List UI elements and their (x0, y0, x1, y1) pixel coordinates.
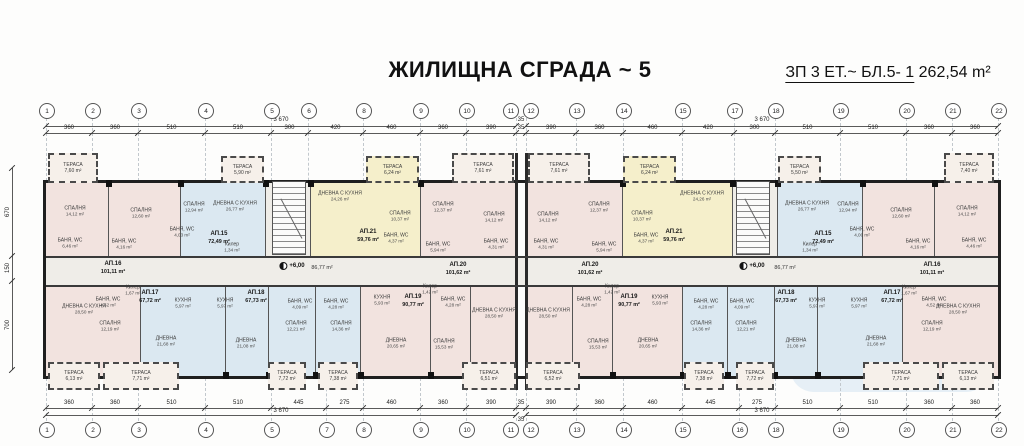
apartment-area: 67,73 m² (245, 297, 267, 304)
terrace: ТЕРАСА7,60 m² (48, 153, 98, 183)
axis-bubble: 9 (413, 422, 429, 438)
room-area: 5,90 m² (234, 170, 251, 176)
dimension-label: 390 (486, 125, 496, 131)
apartment-number: АП.17 (139, 290, 161, 298)
room-area: 6,51 m² (481, 376, 498, 382)
room-name: ТЕРАСА (63, 162, 82, 168)
axis-bubble: 5 (264, 422, 280, 438)
apartment-area: 90,77 m² (618, 301, 640, 308)
dimension-label: 510 (166, 400, 176, 406)
room-name: ТЕРАСА (549, 162, 568, 168)
dimension-label: 35 (518, 417, 525, 423)
dimension-label: 460 (647, 125, 657, 131)
terrace: ТЕРАСА5,50 m² (778, 156, 821, 183)
terrace: ТЕРАСА7,72 m² (268, 362, 306, 390)
terrace: ТЕРАСА6,52 m² (526, 362, 580, 390)
apartment-number: АП.16 (101, 261, 125, 269)
dimension-tick (9, 367, 15, 373)
apartment-area: 101,62 m² (578, 269, 603, 276)
room-name: ТЕРАСА (959, 162, 978, 168)
room-name: ТЕРАСА (958, 370, 977, 376)
expansion-joint-wall (525, 153, 528, 390)
apartment-label: АП.16101,11 m² (101, 261, 125, 275)
axis-bubble: 12 (523, 103, 539, 119)
room-area: 7,61 m² (475, 168, 492, 174)
apartment-area: 90,77 m² (402, 301, 424, 308)
vertical-dimension-label: 150 (5, 263, 11, 273)
room-name: ТЕРАСА (277, 370, 296, 376)
terrace: ТЕРАСА6,51 m² (462, 362, 516, 390)
dimension-label: 360 (64, 125, 74, 131)
apartment-area: 101,11 m² (920, 269, 944, 276)
room-name: ТЕРАСА (383, 164, 402, 170)
apartment-label: АП.1767,72 m² (139, 290, 161, 304)
wall (732, 183, 733, 256)
dimension-label: 510 (868, 125, 878, 131)
apartment-label: АП.16101,11 m² (920, 262, 944, 276)
terrace: ТЕРАСА5,90 m² (221, 156, 264, 183)
room-name: ТЕРАСА (479, 370, 498, 376)
expansion-joint-wall (515, 153, 518, 390)
axis-bubble: 3 (131, 422, 147, 438)
axis-bubble: 4 (198, 422, 214, 438)
axis-bubble: 22 (991, 103, 1007, 119)
axis-bubble: 16 (732, 422, 748, 438)
room-area: 7,61 m² (551, 168, 568, 174)
dimension-label: 420 (703, 125, 713, 131)
dimension-label: 510 (802, 125, 812, 131)
room-area: 6,24 m² (641, 170, 658, 176)
column (178, 180, 184, 187)
axis-bubble: 15 (675, 422, 691, 438)
room-area: 7,60 m² (65, 168, 82, 174)
wall (180, 183, 181, 256)
apartment-number: АП.17 (881, 290, 903, 298)
dimension-label: 300 (749, 125, 759, 131)
wall (310, 183, 311, 256)
apartment-label: АП.1572,49 m² (812, 231, 834, 245)
room-area: 5,50 m² (791, 170, 808, 176)
column (223, 372, 229, 379)
dimension-label: 360 (438, 400, 448, 406)
apartment-label: АП.2159,76 m² (357, 229, 379, 243)
room-name: ТЕРАСА (640, 164, 659, 170)
dimension-label: 360 (924, 400, 934, 406)
apartment-number: АП.20 (578, 262, 603, 270)
column (815, 372, 821, 379)
apartment-label: АП.1990,77 m² (402, 294, 424, 308)
dimension-label: 510 (868, 400, 878, 406)
terrace: ТЕРАСА7,72 m² (736, 362, 774, 390)
room-area: 7,38 m² (330, 376, 347, 382)
apartment-number: АП.16 (920, 262, 944, 270)
apartment-area: 59,76 m² (663, 236, 685, 243)
stair-direction-line (280, 198, 302, 238)
wall (315, 285, 316, 376)
level-value: +6,00 (289, 263, 304, 269)
wall (430, 285, 431, 376)
dimension-label: 360 (924, 125, 934, 131)
apartment-label: АП.2159,76 m² (663, 229, 685, 243)
axis-bubble: 2 (85, 422, 101, 438)
dimension-label: 360 (438, 125, 448, 131)
terrace: ТЕРАСА7,38 m² (318, 362, 358, 390)
axis-bubble: 6 (301, 103, 317, 119)
axis-bubble: 10 (459, 422, 475, 438)
axis-bubble: 13 (569, 103, 585, 119)
wall (682, 285, 683, 376)
terrace: ТЕРАСА7,61 m² (452, 153, 514, 183)
wall (225, 285, 226, 376)
dimension-label: 35 (518, 400, 525, 406)
staircase (736, 181, 770, 255)
room-name: ТЕРАСА (233, 164, 252, 170)
vertical-dimension-label: 700 (5, 320, 11, 330)
apartment-area: 72,49 m² (812, 238, 834, 245)
dimension-label: 360 (594, 125, 604, 131)
wall (727, 285, 728, 376)
dimension-label: 420 (330, 125, 340, 131)
apartment-area: 101,11 m² (101, 268, 125, 275)
axis-bubble: 21 (945, 103, 961, 119)
apartment-number: АП.21 (663, 229, 685, 237)
axis-bubble: 12 (523, 422, 539, 438)
dimension-label: 35 (518, 117, 525, 123)
vertical-dimension-line (12, 168, 13, 370)
room-area: 6,52 m² (545, 376, 562, 382)
axis-bubble: 21 (945, 422, 961, 438)
dimension-label: 445 (705, 400, 715, 406)
dimension-label: 360 (110, 125, 120, 131)
apartment-number: АП.21 (357, 229, 379, 237)
dimension-total-label: 3 670 (273, 408, 288, 414)
wall (108, 183, 109, 256)
terrace: ТЕРАСА7,38 m² (684, 362, 724, 390)
dimension-label: 460 (647, 400, 657, 406)
floor-plan: ТЕРАСА7,60 m²ТЕРАСА5,90 m²ТЕРАСА6,24 m²Т… (0, 0, 1024, 446)
floor-plan-sheet: ЖИЛИЩНА СГРАДА ~ 5 ЗП 3 ЕТ.~ БЛ.5- 1 262… (0, 0, 1024, 446)
room-name: ТЕРАСА (131, 370, 150, 376)
axis-bubble: 9 (413, 103, 429, 119)
terrace: ТЕРАСА7,71 m² (103, 362, 179, 390)
room-name: ТЕРАСА (543, 370, 562, 376)
column (358, 372, 364, 379)
room-name: ТЕРАСА (694, 370, 713, 376)
dimension-label: 460 (386, 400, 396, 406)
room-area: 7,72 m² (747, 376, 764, 382)
axis-bubble: 20 (899, 103, 915, 119)
terrace: ТЕРАСА6,13 m² (942, 362, 994, 390)
room-name: ТЕРАСА (745, 370, 764, 376)
room-area: 7,72 m² (279, 376, 296, 382)
level-value: +6,00 (749, 263, 764, 269)
apartment-number: АП.19 (402, 294, 424, 302)
wall (46, 285, 998, 287)
room-name: ТЕРАСА (790, 164, 809, 170)
apartment-label: АП.1867,73 m² (775, 290, 797, 304)
axis-bubble: 11 (503, 422, 519, 438)
room-area: 6,13 m² (960, 376, 977, 382)
building-outline (43, 180, 1001, 379)
vertical-dimension-label: 670 (5, 207, 11, 217)
apartment-label: АП.1767,72 m² (881, 290, 903, 304)
room-area: 6,13 m² (66, 376, 83, 382)
dimension-label: 510 (166, 125, 176, 131)
wall (817, 285, 818, 376)
axis-bubble: 7 (319, 422, 335, 438)
apartment-area: 67,72 m² (881, 297, 903, 304)
column (106, 180, 112, 187)
axis-bubble: 4 (198, 103, 214, 119)
dimension-label: 360 (64, 400, 74, 406)
room-name: ТЕРАСА (891, 370, 910, 376)
apartment-number: АП.15 (812, 231, 834, 239)
dimension-label: 445 (293, 400, 303, 406)
axis-bubble: 13 (569, 422, 585, 438)
dimension-line (46, 408, 998, 409)
wall (934, 183, 935, 256)
terrace: ТЕРАСА7,40 m² (944, 153, 994, 183)
dimension-line (46, 133, 998, 134)
dimension-label: 360 (110, 400, 120, 406)
room-area: 7,38 m² (696, 376, 713, 382)
apartment-label: АП.20101,62 m² (446, 262, 471, 276)
terrace: ТЕРАСА7,71 m² (863, 362, 939, 390)
wall (612, 285, 613, 376)
apartment-label: АП.1867,73 m² (245, 290, 267, 304)
dimension-total-label: 3 670 (754, 117, 769, 123)
staircase (272, 181, 306, 255)
axis-bubble: 19 (833, 103, 849, 119)
axis-bubble: 5 (264, 103, 280, 119)
apartment-number: АП.15 (208, 231, 230, 239)
axis-bubble: 22 (991, 422, 1007, 438)
wall (777, 183, 778, 256)
dimension-label: 300 (284, 125, 294, 131)
dimension-label: 510 (802, 400, 812, 406)
apartment-label: АП.1572,49 m² (208, 231, 230, 245)
dimension-label: 460 (386, 125, 396, 131)
axis-bubble: 17 (727, 103, 743, 119)
wall (360, 285, 361, 376)
column (932, 180, 938, 187)
room-area: 7,40 m² (961, 168, 978, 174)
terrace: ТЕРАСА6,24 m² (366, 156, 419, 183)
axis-bubble: 20 (899, 422, 915, 438)
wall (46, 256, 998, 258)
apartment-label: АП.1990,77 m² (618, 294, 640, 308)
wall (862, 183, 863, 256)
level-mark: +6,00 (739, 262, 764, 270)
axis-bubble: 11 (503, 103, 519, 119)
dimension-total-label: 3 670 (754, 408, 769, 414)
axis-bubble: 10 (459, 103, 475, 119)
dimension-label: 275 (339, 400, 349, 406)
stair-direction-line (744, 198, 766, 238)
dimension-label: 510 (233, 400, 243, 406)
axis-bubble: 19 (833, 422, 849, 438)
dimension-label: 360 (594, 400, 604, 406)
common-area-label: 86,77 m² (311, 265, 332, 271)
axis-bubble: 14 (616, 103, 632, 119)
column (860, 180, 866, 187)
apartment-number: АП.19 (618, 294, 640, 302)
dimension-label: 275 (752, 400, 762, 406)
wall (265, 183, 266, 256)
axis-bubble: 15 (675, 103, 691, 119)
level-mark: +6,00 (279, 262, 304, 270)
dimension-label: 360 (970, 400, 980, 406)
wall (622, 183, 623, 256)
column (725, 372, 731, 379)
room-area: 7,71 m² (133, 376, 150, 382)
dimension-label: 390 (546, 125, 556, 131)
column (428, 372, 434, 379)
dimension-total-line (46, 415, 516, 416)
axis-bubble: 1 (39, 422, 55, 438)
apartment-area: 72,49 m² (208, 238, 230, 245)
axis-bubble: 8 (356, 422, 372, 438)
axis-bubble: 14 (616, 422, 632, 438)
room-area: 7,71 m² (893, 376, 910, 382)
axis-bubble: 3 (131, 103, 147, 119)
dimension-label: 390 (486, 400, 496, 406)
apartment-number: АП.20 (446, 262, 471, 270)
apartment-area: 67,73 m² (775, 297, 797, 304)
apartment-area: 59,76 m² (357, 236, 379, 243)
dimension-label: 390 (546, 400, 556, 406)
apartment-number: АП.18 (775, 290, 797, 298)
room-area: 6,24 m² (384, 170, 401, 176)
terrace: ТЕРАСА6,24 m² (623, 156, 676, 183)
apartment-area: 67,72 m² (139, 297, 161, 304)
column (730, 180, 736, 187)
apartment-label: АП.20101,62 m² (578, 262, 603, 276)
terrace: ТЕРАСА6,13 m² (48, 362, 100, 390)
axis-bubble: 18 (768, 103, 784, 119)
apartment-area: 101,62 m² (446, 269, 471, 276)
axis-bubble: 8 (356, 103, 372, 119)
dimension-label: 35 (518, 125, 525, 131)
dimension-label: 510 (233, 125, 243, 131)
dimension-total-line (526, 415, 998, 416)
level-symbol (739, 262, 747, 270)
terrace: ТЕРАСА7,61 m² (528, 153, 590, 183)
room-name: ТЕРАСА (473, 162, 492, 168)
room-name: ТЕРАСА (64, 370, 83, 376)
axis-bubble: 1 (39, 103, 55, 119)
axis-bubble: 18 (768, 422, 784, 438)
room-name: ТЕРАСА (328, 370, 347, 376)
common-area-label: 86,77 m² (774, 265, 795, 271)
dimension-label: 360 (970, 125, 980, 131)
column (308, 180, 314, 187)
wall (420, 183, 421, 256)
axis-bubble: 2 (85, 103, 101, 119)
apartment-number: АП.18 (245, 290, 267, 298)
level-symbol (279, 262, 287, 270)
column (610, 372, 616, 379)
